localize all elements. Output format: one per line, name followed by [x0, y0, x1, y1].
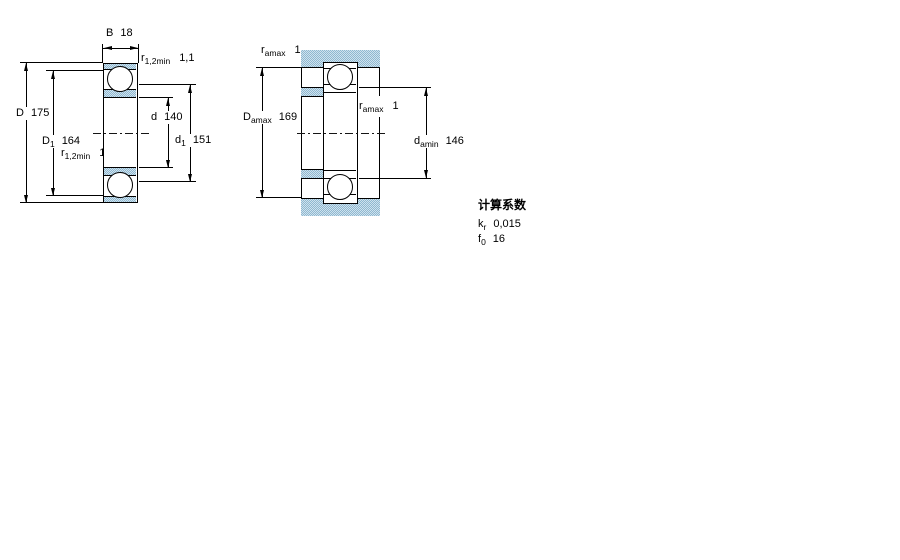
arrowhead-Da-top-icon: [260, 68, 264, 76]
ball-bottom: [107, 172, 133, 198]
arrowhead-d-bottom-icon: [166, 160, 170, 168]
ball-top: [107, 66, 133, 92]
dim-label-d: d140: [148, 111, 185, 124]
arrowhead-da-top-icon: [424, 88, 428, 96]
dim-line-da: [426, 88, 427, 179]
ball-top: [327, 64, 353, 90]
ext-line-D-bottom: [20, 202, 103, 203]
arrowhead-B-left-icon: [104, 46, 112, 50]
centerline-left-view: [93, 133, 149, 134]
dim-label-ra-top: ramax1: [261, 44, 301, 57]
arrowhead-Da-bottom-icon: [260, 190, 264, 198]
bore-line-bottom: [324, 170, 356, 171]
ext-line-da-top: [359, 87, 431, 88]
shoulder-edge-bottom: [379, 117, 380, 198]
factor-f0: f016: [478, 233, 505, 246]
dim-label-B: B18: [106, 27, 133, 40]
ext-line-B-left: [102, 44, 103, 63]
arrowhead-D-bottom-icon: [24, 195, 28, 203]
arrowhead-da-bottom-icon: [424, 170, 428, 178]
arrowhead-d-top-icon: [166, 98, 170, 106]
dim-label-D: D175: [13, 107, 52, 120]
dim-label-r-top: r1,2min1,1: [141, 52, 194, 65]
arrowhead-d1-top-icon: [188, 85, 192, 93]
ext-line-da-bottom: [359, 178, 431, 179]
factor-kr: kr0,015: [478, 218, 521, 231]
shaft-shoulder-top: [301, 87, 324, 97]
dim-line-D: [26, 63, 27, 203]
dim-line-Da: [262, 68, 263, 198]
dim-label-Da: Damax169: [240, 111, 300, 124]
ext-line-B-right: [138, 44, 139, 63]
arrowhead-d1-bottom-icon: [188, 174, 192, 182]
arrowhead-D1-top-icon: [51, 71, 55, 79]
dim-line-d: [168, 98, 169, 168]
shoulder-edge-top: [379, 68, 380, 96]
arrowhead-B-right-icon: [130, 46, 138, 50]
dim-label-da: damin146: [411, 135, 467, 148]
centerline-right-view: [297, 133, 386, 134]
bore-line-top: [324, 92, 356, 93]
ext-line-D-top: [20, 62, 103, 63]
dim-label-ra-inner: ramax1: [359, 100, 399, 113]
shaft-shoulder-bottom: [301, 169, 324, 179]
arrowhead-D-top-icon: [24, 63, 28, 71]
ball-bottom: [327, 174, 353, 200]
calculation-factors-title: 计算系数: [478, 196, 526, 213]
arrowhead-D1-bottom-icon: [51, 188, 55, 196]
dim-label-d1: d1151: [172, 134, 214, 147]
dim-line-D1: [53, 71, 54, 196]
